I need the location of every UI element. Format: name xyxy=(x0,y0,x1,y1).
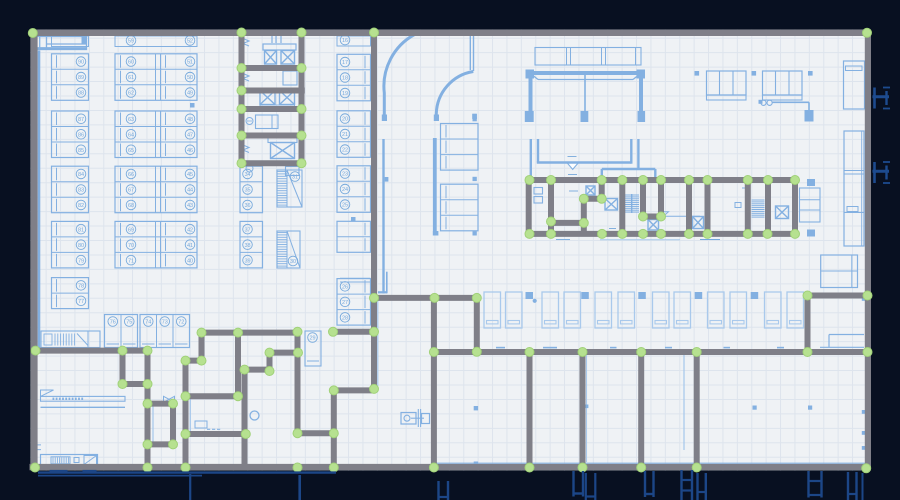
svg-text:42: 42 xyxy=(187,227,193,233)
svg-text:60: 60 xyxy=(128,60,134,66)
svg-text:30: 30 xyxy=(290,259,296,265)
svg-text:45: 45 xyxy=(187,172,193,178)
svg-text:86: 86 xyxy=(78,132,84,138)
svg-text:77: 77 xyxy=(78,299,84,305)
svg-text:17: 17 xyxy=(342,60,348,66)
svg-text:89: 89 xyxy=(78,75,84,81)
svg-text:43: 43 xyxy=(187,203,193,209)
svg-text:85: 85 xyxy=(78,148,84,154)
svg-text:65: 65 xyxy=(128,148,134,154)
svg-text:82: 82 xyxy=(78,203,84,209)
svg-text:49: 49 xyxy=(187,91,193,97)
svg-text:28: 28 xyxy=(342,315,348,321)
svg-text:48: 48 xyxy=(187,117,193,123)
svg-text:39: 39 xyxy=(244,258,250,264)
svg-text:16: 16 xyxy=(342,38,348,44)
svg-text:69: 69 xyxy=(128,227,134,233)
svg-text:81: 81 xyxy=(78,227,84,233)
svg-text:80: 80 xyxy=(78,243,84,249)
svg-text:79: 79 xyxy=(78,258,84,264)
svg-text:24: 24 xyxy=(342,187,348,193)
svg-text:27: 27 xyxy=(342,300,348,306)
svg-text:21: 21 xyxy=(342,132,348,138)
svg-text:72: 72 xyxy=(178,320,184,326)
svg-text:88: 88 xyxy=(78,91,84,97)
svg-text:64: 64 xyxy=(128,132,134,138)
svg-text:63: 63 xyxy=(128,117,134,123)
svg-text:50: 50 xyxy=(187,75,193,81)
svg-text:71: 71 xyxy=(128,258,134,264)
svg-text:41: 41 xyxy=(187,243,193,249)
svg-text:38: 38 xyxy=(244,243,250,249)
svg-text:44: 44 xyxy=(187,188,193,194)
svg-text:61: 61 xyxy=(128,75,134,81)
svg-text:66: 66 xyxy=(128,172,134,178)
svg-text:68: 68 xyxy=(128,203,134,209)
svg-text:75: 75 xyxy=(126,320,132,326)
svg-text:19: 19 xyxy=(342,91,348,97)
svg-text:84: 84 xyxy=(78,172,84,178)
svg-text:29: 29 xyxy=(309,336,315,342)
svg-text:35: 35 xyxy=(244,188,250,194)
svg-text:62: 62 xyxy=(128,91,134,97)
svg-text:34: 34 xyxy=(244,172,250,178)
svg-text:83: 83 xyxy=(78,188,84,194)
svg-text:20: 20 xyxy=(342,117,348,123)
svg-text:26: 26 xyxy=(342,284,348,290)
svg-text:78: 78 xyxy=(78,283,84,289)
svg-text:73: 73 xyxy=(162,320,168,326)
svg-text:67: 67 xyxy=(128,188,134,194)
svg-text:52: 52 xyxy=(187,39,193,45)
svg-text:22: 22 xyxy=(342,148,348,154)
svg-text:47: 47 xyxy=(187,132,193,138)
svg-text:76: 76 xyxy=(110,320,116,326)
svg-text:18: 18 xyxy=(342,76,348,82)
svg-text:40: 40 xyxy=(187,258,193,264)
svg-text:90: 90 xyxy=(78,60,84,66)
svg-text:25: 25 xyxy=(342,203,348,209)
svg-text:59: 59 xyxy=(128,39,134,45)
svg-text:23: 23 xyxy=(342,172,348,178)
svg-text:51: 51 xyxy=(187,60,193,66)
svg-text:36: 36 xyxy=(244,203,250,209)
svg-text:37: 37 xyxy=(244,227,250,233)
svg-text:70: 70 xyxy=(128,243,134,249)
svg-text:74: 74 xyxy=(145,320,151,326)
svg-text:87: 87 xyxy=(78,117,84,123)
svg-text:46: 46 xyxy=(187,148,193,154)
